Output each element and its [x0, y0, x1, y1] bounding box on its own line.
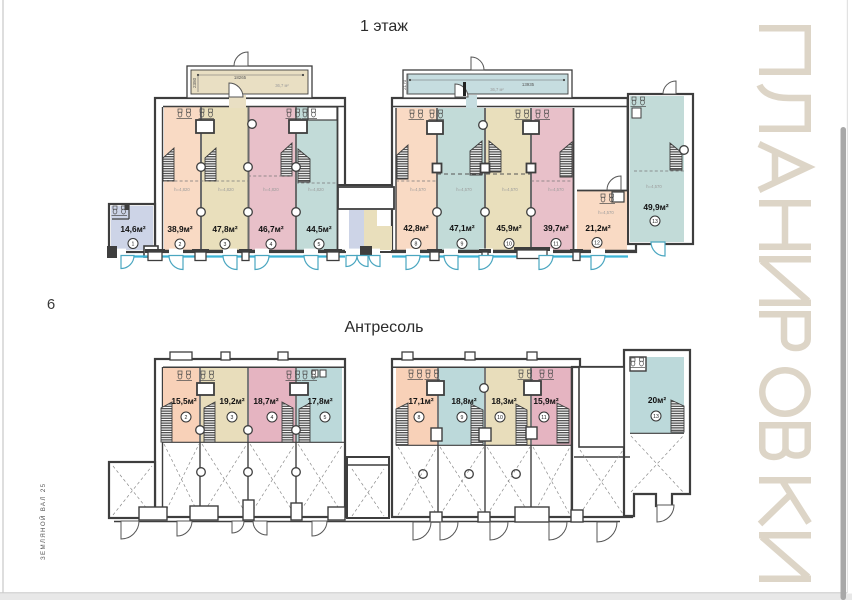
svg-text:20м²: 20м² [648, 395, 667, 405]
svg-text:2: 2 [179, 242, 182, 248]
svg-text:h=4,570: h=4,570 [410, 187, 426, 192]
svg-text:17,8м²: 17,8м² [307, 396, 332, 406]
svg-text:1: 1 [132, 242, 135, 248]
svg-text:h=4,820: h=4,820 [218, 187, 234, 192]
svg-text:46,7м²: 46,7м² [258, 224, 283, 234]
svg-text:13935: 13935 [522, 82, 535, 87]
svg-text:39,7м²: 39,7м² [543, 223, 568, 233]
svg-text:5: 5 [324, 415, 327, 421]
svg-text:45,9м²: 45,9м² [496, 223, 521, 233]
svg-text:2380: 2380 [192, 77, 197, 88]
svg-text:4: 4 [271, 415, 274, 421]
svg-text:6: 6 [47, 296, 55, 313]
svg-text:42,8м²: 42,8м² [403, 223, 428, 233]
svg-text:2170: 2170 [402, 79, 407, 90]
svg-text:38,9м²: 38,9м² [167, 224, 192, 234]
svg-text:8: 8 [418, 415, 421, 421]
svg-text:h=4,570: h=4,570 [456, 187, 472, 192]
svg-text:17,1м²: 17,1м² [408, 396, 433, 406]
svg-text:13: 13 [653, 414, 659, 420]
svg-text:15,9м²: 15,9м² [533, 396, 558, 406]
svg-text:19,2м²: 19,2м² [219, 396, 244, 406]
svg-text:h=4,570: h=4,570 [646, 184, 662, 189]
svg-text:18265: 18265 [234, 75, 247, 80]
svg-text:18,7м²: 18,7м² [253, 396, 278, 406]
svg-text:47,1м²: 47,1м² [449, 223, 474, 233]
svg-text:h=4,820: h=4,820 [174, 187, 190, 192]
svg-text:h=4,570: h=4,570 [502, 187, 518, 192]
svg-text:h=4,820: h=4,820 [263, 187, 279, 192]
svg-text:h=4,570: h=4,570 [548, 187, 564, 192]
svg-text:10: 10 [506, 242, 512, 248]
svg-text:44,5м²: 44,5м² [306, 224, 331, 234]
svg-text:12: 12 [594, 241, 600, 247]
svg-text:15,5м²: 15,5м² [171, 396, 196, 406]
svg-text:5: 5 [318, 242, 321, 248]
svg-text:4: 4 [270, 242, 273, 248]
svg-text:11: 11 [553, 242, 558, 248]
svg-text:Антресоль: Антресоль [344, 319, 423, 336]
svg-text:3: 3 [224, 242, 227, 248]
svg-text:18,3м²: 18,3м² [491, 396, 516, 406]
svg-text:14,6м²: 14,6м² [120, 224, 145, 234]
svg-text:47,8м²: 47,8м² [212, 224, 237, 234]
svg-text:h=4,570: h=4,570 [598, 210, 614, 215]
svg-text:9: 9 [461, 242, 464, 248]
svg-text:3: 3 [231, 415, 234, 421]
svg-text:21,2м²: 21,2м² [585, 223, 610, 233]
svg-text:36,7 м²: 36,7 м² [275, 83, 289, 88]
svg-text:9: 9 [461, 415, 464, 421]
svg-text:8: 8 [415, 242, 418, 248]
svg-text:36,7 м²: 36,7 м² [490, 87, 504, 92]
svg-text:10: 10 [497, 415, 503, 421]
svg-text:2: 2 [185, 415, 188, 421]
svg-text:49,9м²: 49,9м² [643, 202, 668, 212]
svg-text:1 этаж: 1 этаж [360, 18, 408, 35]
svg-text:h=4,820: h=4,820 [308, 187, 324, 192]
svg-text:11: 11 [541, 415, 546, 421]
svg-text:ЗЕМЛЯНОЙ ВАЛ 25: ЗЕМЛЯНОЙ ВАЛ 25 [39, 483, 47, 560]
svg-text:13: 13 [652, 219, 658, 225]
svg-text:18,8м²: 18,8м² [451, 396, 476, 406]
